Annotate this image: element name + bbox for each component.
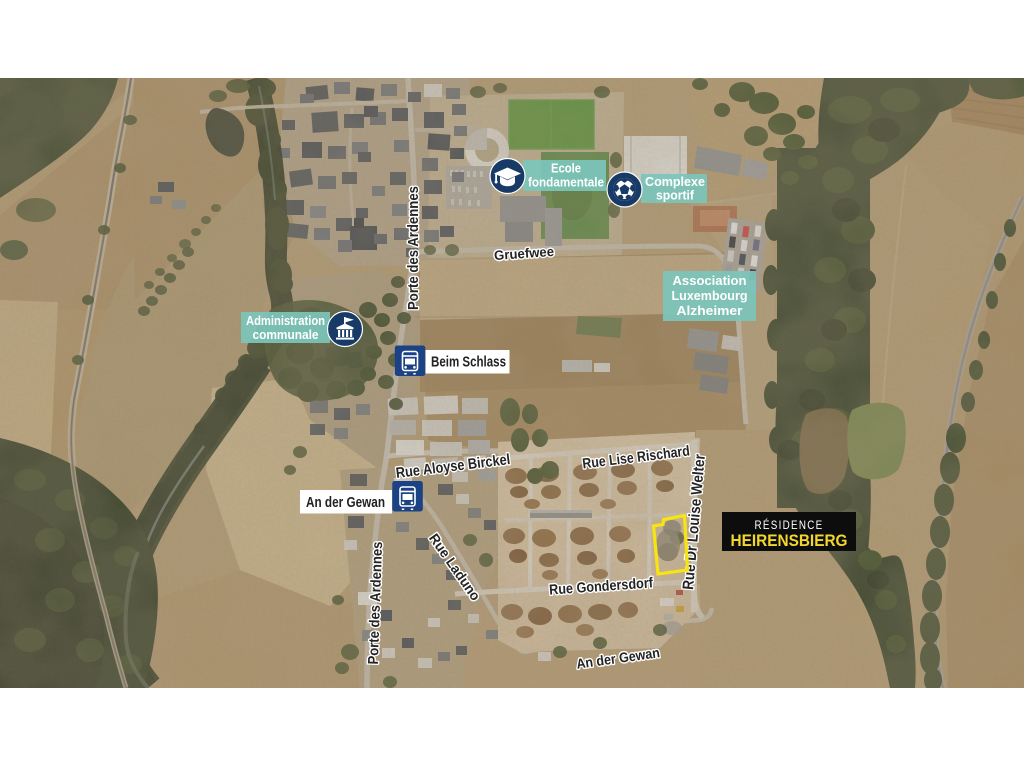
- svg-text:Alzheimer: Alzheimer: [677, 303, 743, 318]
- svg-text:sportif: sportif: [656, 189, 695, 203]
- svg-text:An der Gewan: An der Gewan: [306, 495, 385, 511]
- svg-text:Luxembourg: Luxembourg: [672, 288, 748, 303]
- svg-text:Ecole: Ecole: [551, 162, 581, 176]
- svg-text:Beim Schlass: Beim Schlass: [431, 355, 506, 371]
- svg-text:RÉSIDENCE: RÉSIDENCE: [755, 519, 824, 532]
- svg-text:Association: Association: [673, 273, 747, 288]
- svg-text:Administration: Administration: [246, 314, 325, 328]
- svg-text:communale: communale: [253, 328, 319, 342]
- svg-text:fondamentale: fondamentale: [528, 176, 604, 190]
- svg-text:HEIRENSBIERG: HEIRENSBIERG: [731, 532, 848, 550]
- svg-text:Complexe: Complexe: [645, 175, 705, 189]
- svg-text:Porte des Ardennes: Porte des Ardennes: [406, 186, 422, 310]
